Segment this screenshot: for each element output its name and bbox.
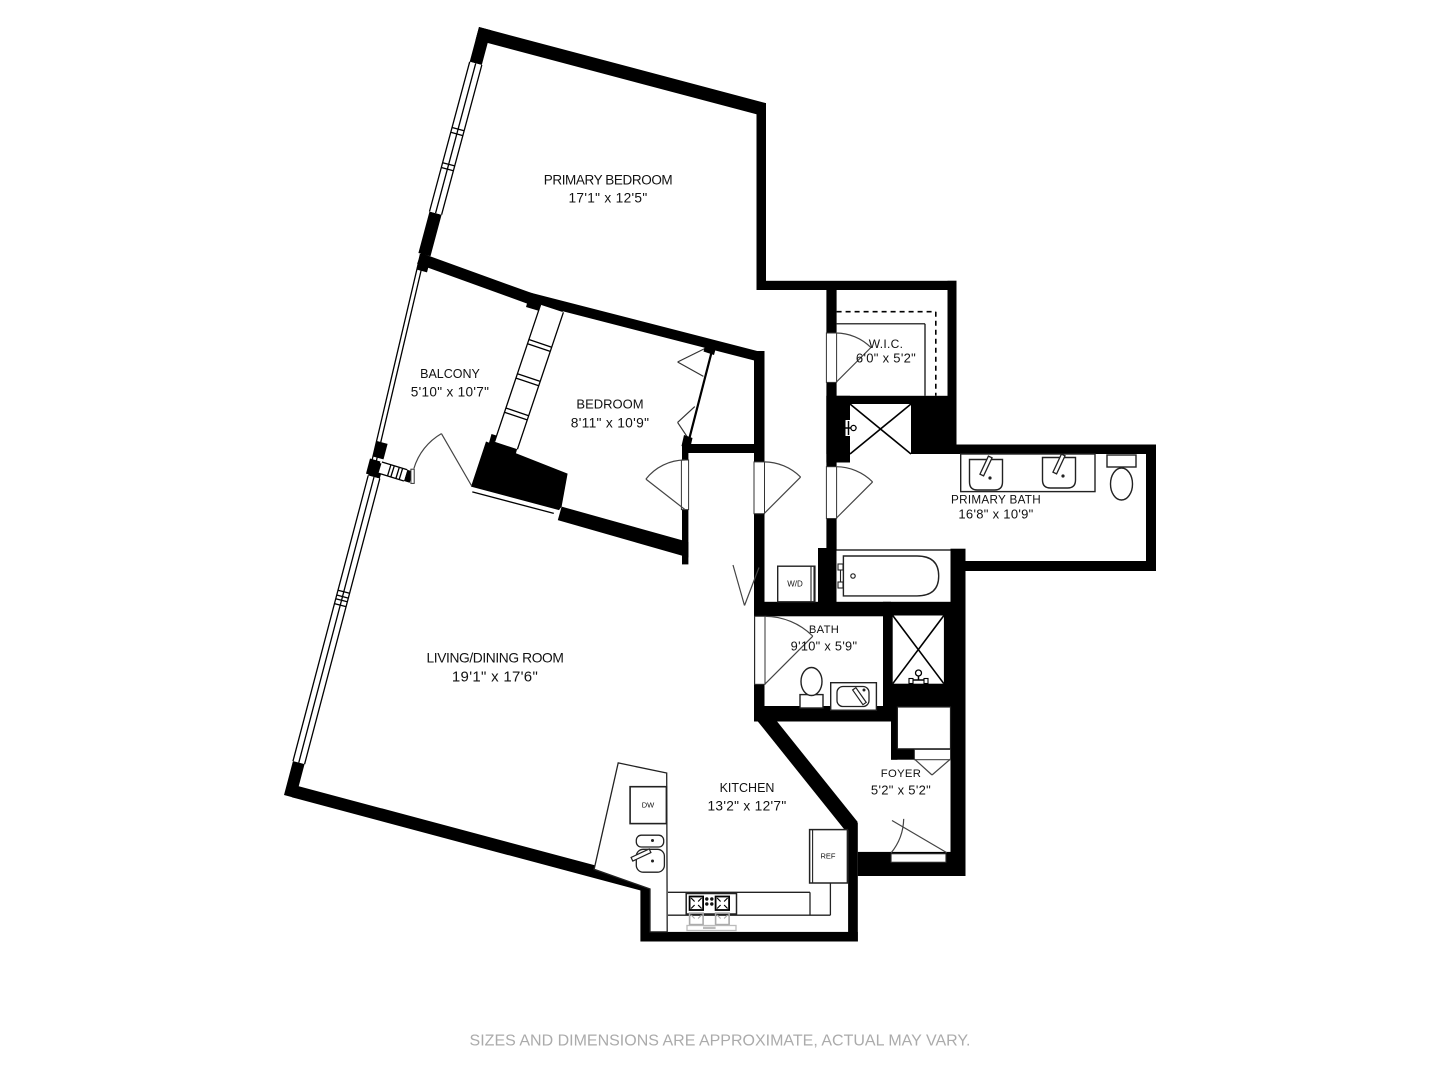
svg-text:FOYER: FOYER: [881, 768, 921, 780]
svg-text:PRIMARY BATH: PRIMARY BATH: [951, 494, 1041, 507]
svg-text:KITCHEN: KITCHEN: [720, 781, 775, 795]
svg-text:LIVING/DINING ROOM: LIVING/DINING ROOM: [427, 651, 564, 666]
svg-text:BATH: BATH: [809, 624, 839, 636]
svg-text:DW: DW: [642, 801, 655, 810]
svg-text:8'11" x 10'9": 8'11" x 10'9": [571, 416, 650, 431]
svg-text:REF: REF: [821, 852, 836, 861]
svg-text:W/D: W/D: [787, 580, 803, 589]
svg-text:13'2" x 12'7": 13'2" x 12'7": [708, 799, 787, 814]
svg-text:BEDROOM: BEDROOM: [576, 397, 643, 412]
svg-text:9'10" x 5'9": 9'10" x 5'9": [791, 639, 858, 654]
svg-text:6'0" x 5'2": 6'0" x 5'2": [856, 351, 916, 366]
svg-text:BALCONY: BALCONY: [420, 367, 480, 381]
svg-text:W.I.C.: W.I.C.: [869, 337, 903, 351]
svg-text:17'1" x 12'5": 17'1" x 12'5": [569, 191, 648, 206]
svg-text:16'8" x 10'9": 16'8" x 10'9": [958, 507, 1033, 522]
svg-text:5'10" x 10'7": 5'10" x 10'7": [411, 385, 489, 400]
svg-text:SIZES AND DIMENSIONS ARE APPRO: SIZES AND DIMENSIONS ARE APPROXIMATE, AC…: [470, 1033, 971, 1050]
svg-text:PRIMARY BEDROOM: PRIMARY BEDROOM: [544, 173, 673, 188]
svg-text:5'2" x 5'2": 5'2" x 5'2": [871, 783, 931, 798]
svg-text:19'1" x 17'6": 19'1" x 17'6": [452, 669, 538, 686]
